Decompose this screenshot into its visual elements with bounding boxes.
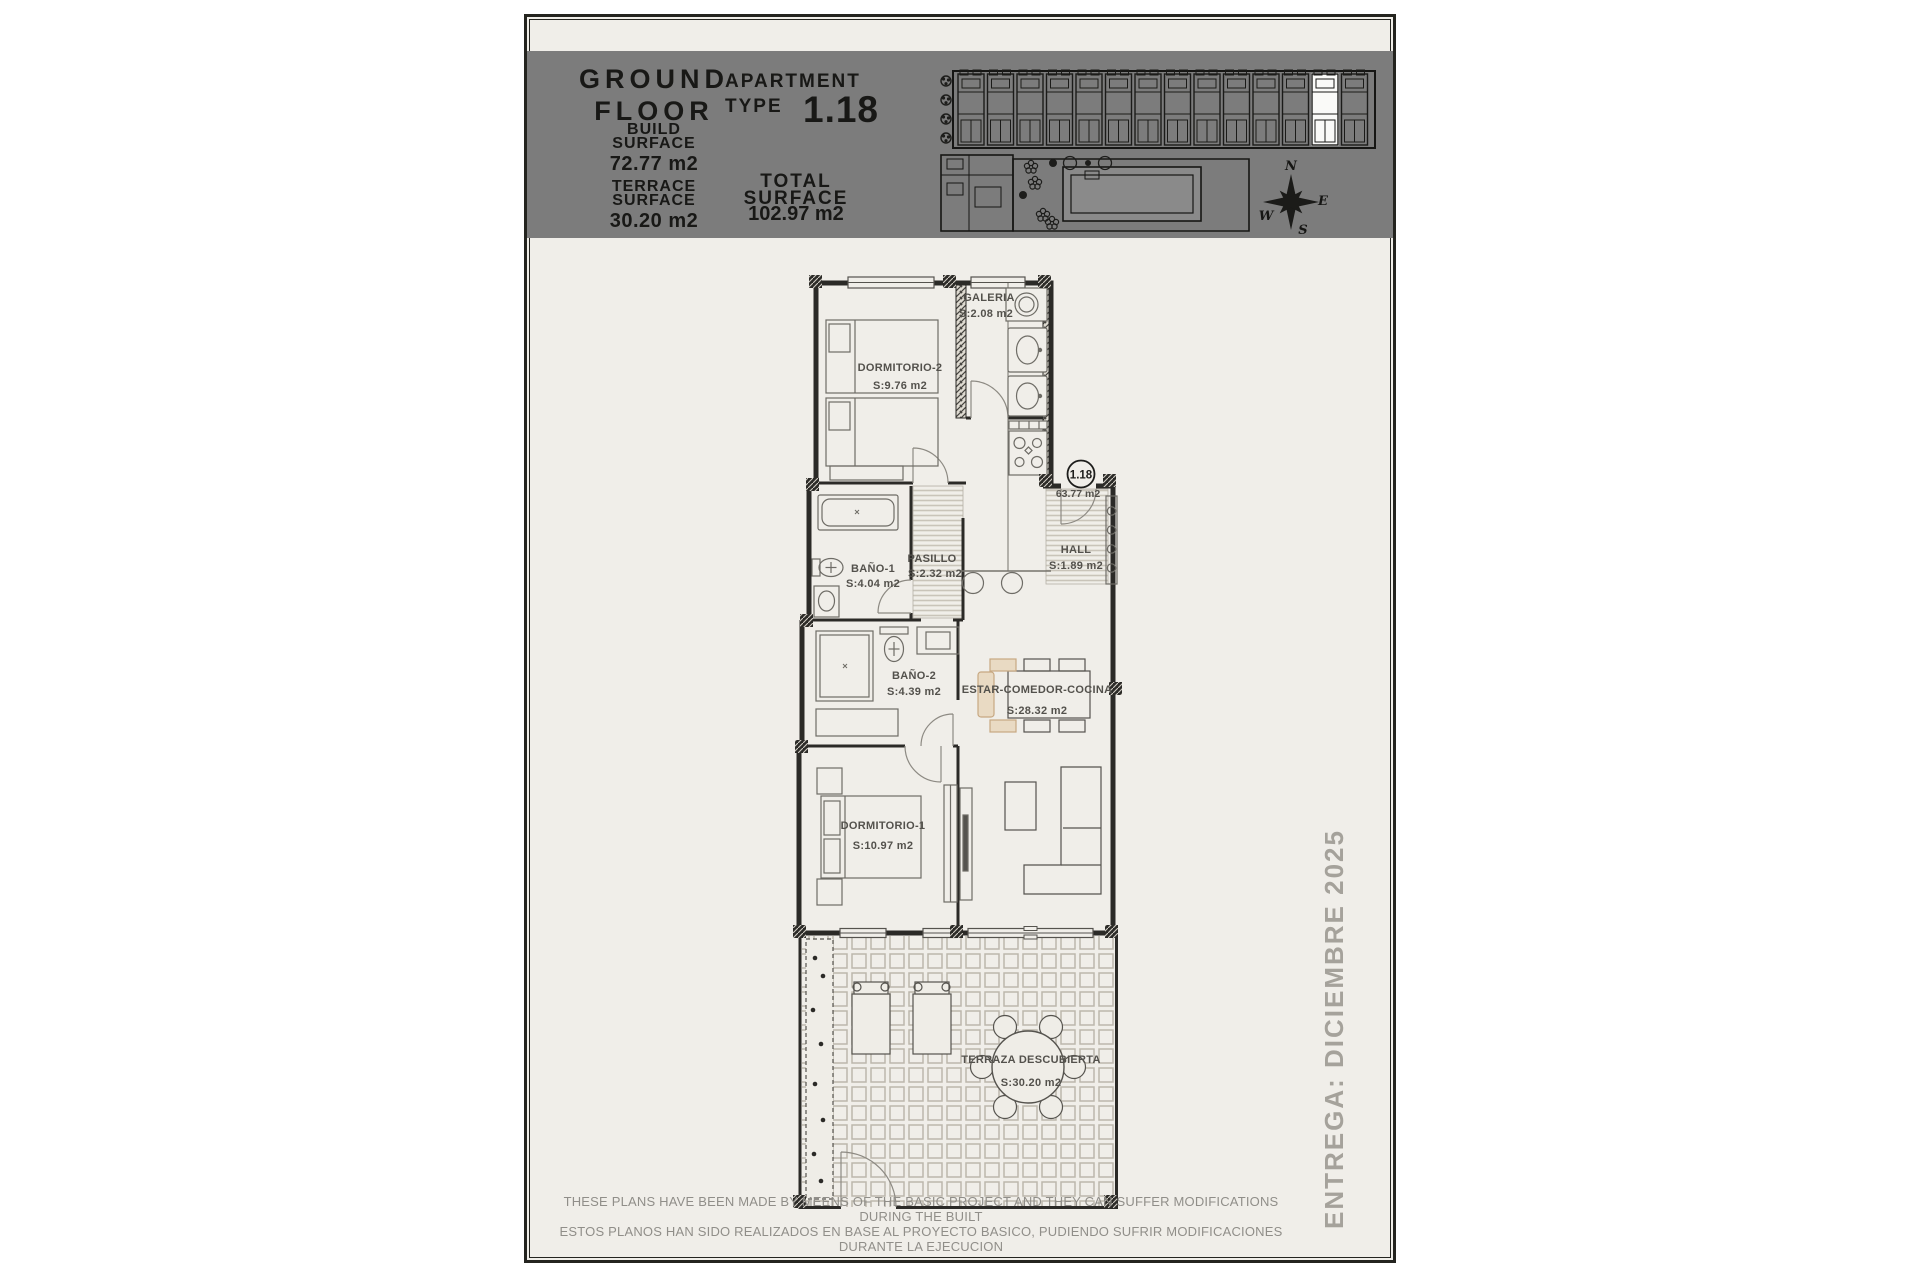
kitchen-sink-1-icon: [1008, 328, 1047, 372]
vanity-icon: [917, 627, 959, 654]
toilet-icon: [880, 627, 908, 662]
disclaimer-line-es: ESTOS PLANOS HAN SIDO REALIZADOS EN BASE…: [549, 1224, 1293, 1254]
room-label-bano1: BAÑO-1: [851, 562, 895, 575]
disclaimer-line-en: THESE PLANS HAVE BEEN MADE BY MEENS OF T…: [549, 1194, 1293, 1224]
chair-icon: [990, 659, 1016, 671]
total-surface-label: TOTAL SURFACE: [721, 173, 871, 207]
unit-badge-number: 1.18: [1070, 470, 1093, 482]
svg-text:S:2.08 m2: S:2.08 m2: [959, 308, 1013, 320]
compass-s: S: [1298, 223, 1307, 235]
apartment-type-label: TYPE: [725, 96, 783, 118]
compass-e: E: [1317, 194, 1329, 209]
kitchen-sink-2-icon: [1008, 376, 1047, 416]
useful-surface-label: 63.77 m2: [1056, 488, 1101, 500]
build-surface-label: BUILD SURFACE: [559, 123, 749, 151]
svg-text:S:4.04 m2: S:4.04 m2: [846, 578, 900, 590]
siteplan-trees-left: [941, 76, 951, 143]
kitchen: [961, 283, 1051, 594]
plan-sheet: GROUND FLOOR BUILD SURFACE 72.77 m2 TERR…: [524, 14, 1396, 1263]
compass-w: W: [1259, 209, 1275, 224]
sun-lounger-icon: [913, 982, 951, 1054]
floor-title: GROUND FLOOR: [559, 63, 749, 127]
chair-icon: [1024, 659, 1050, 671]
header-band: GROUND FLOOR BUILD SURFACE 72.77 m2 TERR…: [527, 51, 1393, 238]
room-label-estar: ESTAR-COMEDOR-COCINA: [962, 684, 1113, 696]
siteplan-garden: [941, 155, 1249, 231]
dresser-icon: [830, 466, 903, 480]
double-bed-icon: [821, 796, 921, 878]
room-label-terraza: TERRAZA DESCUBIERTA: [961, 1054, 1101, 1066]
chair-icon: [1059, 659, 1085, 671]
sun-lounger-icon: [852, 982, 890, 1054]
svg-text:S:1.89 m2: S:1.89 m2: [1049, 560, 1103, 572]
site-key-plan: N E W S: [939, 67, 1399, 235]
room-label-bano2: BAÑO-2: [892, 669, 936, 682]
bar-stool-icon: [963, 573, 984, 594]
svg-text:S:10.97 m2: S:10.97 m2: [853, 840, 913, 852]
coffee-table-icon: [1005, 782, 1036, 830]
chair-icon: [1059, 720, 1085, 732]
bathroom2-furniture: [816, 627, 959, 736]
chair-icon: [1024, 720, 1050, 732]
svg-text:S:4.39 m2: S:4.39 m2: [887, 686, 941, 698]
total-surface-value: 102.97 m2: [721, 203, 871, 226]
floor-plan: 1.18 63.77 m2: [793, 268, 1128, 1218]
chair-icon: [990, 720, 1016, 732]
bathroom1-furniture: [812, 495, 898, 617]
toilet-icon: [812, 559, 843, 577]
shower-icon: [816, 631, 873, 701]
bed-icon: [826, 398, 938, 466]
delivery-note: ENTREGA: DICIEMBRE 2025: [1319, 759, 1365, 1229]
nightstand-icon: [817, 879, 842, 905]
room-label-pasillo: PASILLO: [908, 553, 957, 565]
wardrobe-icon: [944, 785, 957, 902]
disclaimer: THESE PLANS HAVE BEEN MADE BY MEENS OF T…: [549, 1194, 1293, 1254]
planter-icon: [806, 939, 833, 1199]
room-label-hall: HALL: [1061, 544, 1092, 556]
unit-badge: 1.18 63.77 m2: [1056, 461, 1101, 501]
bedroom1-furniture: [817, 768, 972, 905]
nightstand-icon: [817, 768, 842, 794]
compass-icon: N E W S: [1259, 159, 1329, 235]
apartment-number: 1.18: [803, 89, 879, 131]
bar-stool-icon: [1002, 573, 1023, 594]
bedroom2-furniture: [826, 320, 938, 480]
compass-n: N: [1284, 159, 1298, 174]
room-label-dormitorio2: DORMITORIO-2: [858, 362, 943, 374]
svg-text:S:28.32 m2: S:28.32 m2: [1007, 705, 1067, 717]
hallway-floor-hatch: [913, 486, 963, 618]
svg-text:S:30.20 m2: S:30.20 m2: [1001, 1077, 1061, 1089]
cabinet-icon: [816, 709, 898, 736]
svg-text:S:2.32 m2: S:2.32 m2: [908, 568, 962, 580]
floor-title-line1: GROUND: [559, 63, 749, 95]
siteplan-units-row: [953, 70, 1375, 148]
room-label-dormitorio1: DORMITORIO-1: [841, 820, 926, 832]
svg-text:S:9.76 m2: S:9.76 m2: [873, 380, 927, 392]
room-label-galeria: GALERIA: [963, 292, 1015, 304]
sink-icon: [814, 586, 839, 617]
stove-icon: [1009, 431, 1047, 475]
tv-unit-icon: [960, 788, 972, 900]
